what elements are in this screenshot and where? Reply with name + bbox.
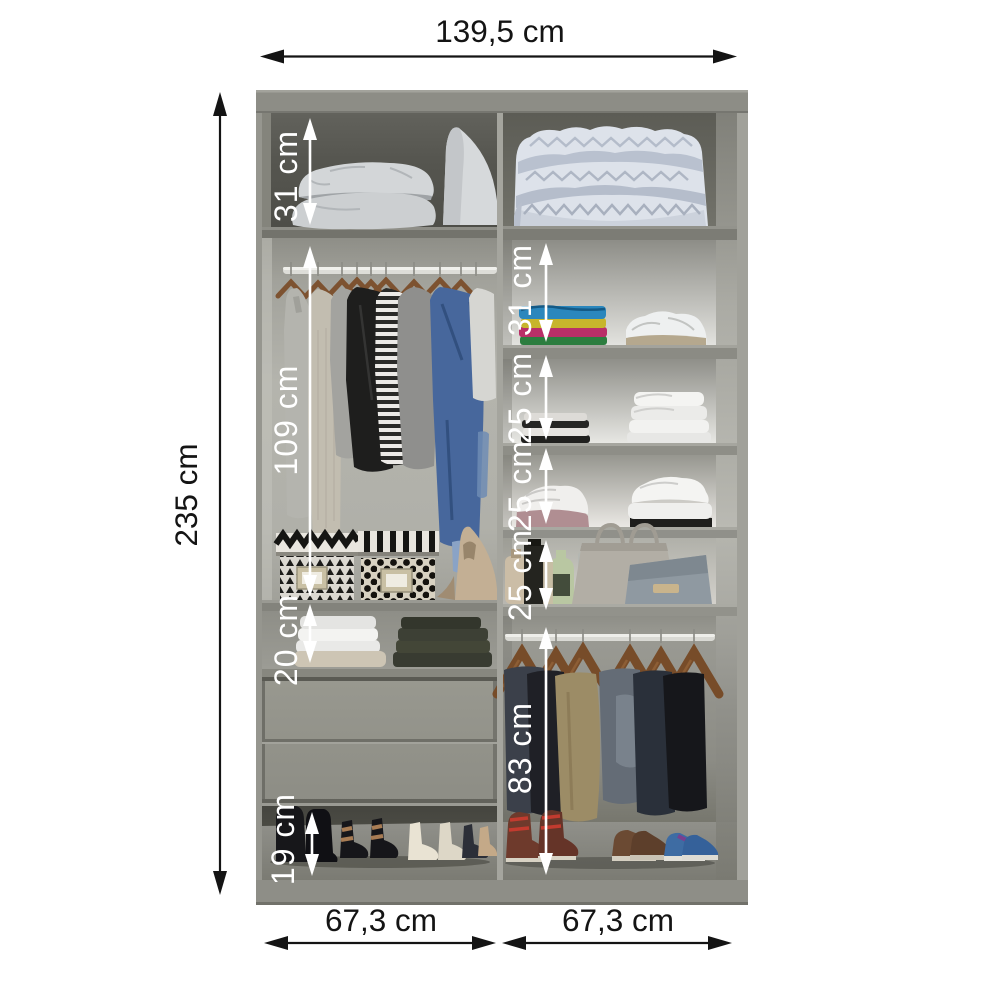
svg-text:25 cm: 25 cm bbox=[502, 352, 538, 444]
svg-text:109 cm: 109 cm bbox=[268, 365, 304, 476]
svg-text:25 cm: 25 cm bbox=[502, 440, 538, 532]
svg-text:31 cm: 31 cm bbox=[502, 244, 538, 336]
svg-text:83 cm: 83 cm bbox=[502, 702, 538, 794]
svg-text:20 cm: 20 cm bbox=[268, 594, 304, 686]
svg-text:235 cm: 235 cm bbox=[168, 443, 204, 546]
svg-text:67,3 cm: 67,3 cm bbox=[562, 902, 674, 938]
svg-text:67,3 cm: 67,3 cm bbox=[325, 902, 437, 938]
svg-text:19 cm: 19 cm bbox=[265, 793, 301, 885]
svg-text:25 cm: 25 cm bbox=[502, 529, 538, 621]
svg-text:139,5 cm: 139,5 cm bbox=[435, 13, 565, 49]
svg-text:31 cm: 31 cm bbox=[268, 130, 304, 222]
